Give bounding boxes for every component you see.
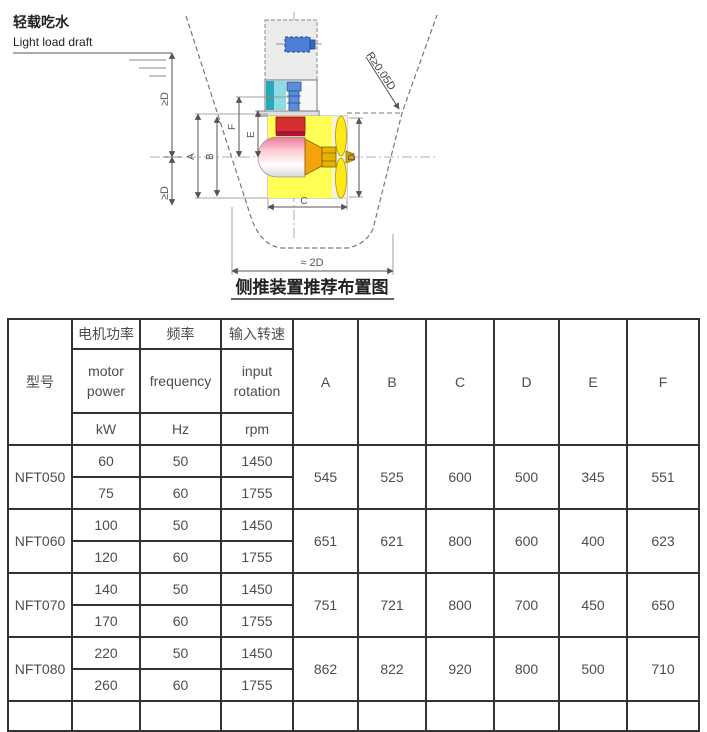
table-row: NFT080 220 50 1450 862 822 920 800 500 7…	[8, 637, 699, 669]
rpm-cell: 1755	[221, 541, 293, 573]
kw-cell: 140	[72, 573, 140, 605]
model-cell: NFT080	[8, 637, 72, 701]
dim-b-cell: 721	[358, 573, 426, 637]
model-cell: NFT070	[8, 573, 72, 637]
empty-cell	[293, 701, 358, 731]
dim-a-cell: 862	[293, 637, 358, 701]
hz-cell: 60	[140, 669, 221, 701]
header-power-en-line1: motor	[73, 361, 139, 381]
dim-d-cell: 700	[494, 573, 559, 637]
table-row: NFT050 60 50 1450 545 525 600 500 345 55…	[8, 445, 699, 477]
dim-f-cell: 551	[627, 445, 699, 509]
gear-teal-slab	[266, 81, 274, 110]
header-rotation-zh: 输入转速	[221, 319, 293, 349]
dim-e-cell: 500	[559, 637, 627, 701]
kw-cell: 100	[72, 509, 140, 541]
table-row: NFT060 100 50 1450 651 621 800 600 400 6…	[8, 509, 699, 541]
kw-cell: 75	[72, 477, 140, 509]
hz-cell: 60	[140, 477, 221, 509]
header-model: 型号	[8, 319, 72, 445]
header-dim-c: C	[426, 319, 494, 445]
table-row: NFT070 140 50 1450 751 721 800 700 450 6…	[8, 573, 699, 605]
dim-c-cell: 920	[426, 637, 494, 701]
dim-a-cell: 751	[293, 573, 358, 637]
dim-c-cell: 600	[426, 445, 494, 509]
model-cell: NFT060	[8, 509, 72, 573]
thruster-arrangement-diagram: 轻载吃水 Light load draft ≥D ≥D R≥0.05D	[0, 0, 707, 312]
header-power-unit: kW	[72, 413, 140, 445]
dim-e-cell: 450	[559, 573, 627, 637]
empty-cell	[494, 701, 559, 731]
dim-a-cell: 545	[293, 445, 358, 509]
hz-cell: 60	[140, 541, 221, 573]
dim-d-cell: 600	[494, 509, 559, 573]
empty-cell	[426, 701, 494, 731]
kw-cell: 60	[72, 445, 140, 477]
kw-cell: 220	[72, 637, 140, 669]
dim-a-cell: 651	[293, 509, 358, 573]
empty-cell	[140, 701, 221, 731]
propeller-blade-lower	[336, 158, 347, 198]
dim-b-cell: 621	[358, 509, 426, 573]
page: { "diagram": { "light_load_draft_zh": "轻…	[0, 0, 707, 714]
dim-f-cell: 623	[627, 509, 699, 573]
empty-cell	[358, 701, 426, 731]
propeller-hub	[322, 147, 336, 167]
ge-d-lower-label: ≥D	[159, 186, 171, 200]
thruster-diagram-svg: 轻载吃水 Light load draft ≥D ≥D R≥0.05D	[0, 0, 707, 312]
dim-label-d: D	[347, 154, 358, 161]
rpm-cell: 1450	[221, 509, 293, 541]
light-load-draft-en-label: Light load draft	[13, 35, 93, 49]
thruster-spec-table: 型号 电机功率 频率 输入转速 A B C D E F motor power …	[7, 318, 700, 732]
header-power-en-line2: power	[73, 381, 139, 401]
header-dim-f: F	[627, 319, 699, 445]
motor-end-cap	[310, 40, 315, 49]
shaft-coupling	[287, 82, 301, 91]
header-dim-b: B	[358, 319, 426, 445]
dim-label-f: F	[227, 124, 238, 130]
light-load-draft-zh-label: 轻载吃水	[13, 14, 70, 30]
gear-teal-slab-light	[274, 81, 286, 110]
dim-f-cell: 710	[627, 637, 699, 701]
header-dim-a: A	[293, 319, 358, 445]
empty-cell	[221, 701, 293, 731]
empty-cell	[559, 701, 627, 731]
dim-d-cell: 500	[494, 445, 559, 509]
model-cell: NFT050	[8, 445, 72, 509]
hz-cell: 50	[140, 637, 221, 669]
hz-cell: 50	[140, 573, 221, 605]
header-frequency-zh: 频率	[140, 319, 221, 349]
header-frequency-en: frequency	[140, 349, 221, 413]
approx-2d-label: ≈ 2D	[300, 257, 323, 269]
drive-shaft	[289, 91, 299, 111]
dim-c-cell: 800	[426, 509, 494, 573]
rpm-cell: 1450	[221, 637, 293, 669]
rpm-cell: 1755	[221, 477, 293, 509]
radius-label: R≥0.05D	[364, 50, 398, 93]
pod-body	[258, 137, 305, 177]
dim-b-cell: 822	[358, 637, 426, 701]
header-rotation-en-line2: rotation	[222, 381, 292, 401]
ge-d-upper-label: ≥D	[159, 92, 171, 106]
dim-b-cell: 525	[358, 445, 426, 509]
diagram-caption: 侧推装置推荐布置图	[236, 277, 389, 297]
dim-e-cell: 400	[559, 509, 627, 573]
rpm-cell: 1450	[221, 445, 293, 477]
kw-cell: 170	[72, 605, 140, 637]
header-rotation-en: input rotation	[221, 349, 293, 413]
header-dim-e: E	[559, 319, 627, 445]
header-rotation-unit: rpm	[221, 413, 293, 445]
empty-cell	[8, 701, 72, 731]
kw-cell: 120	[72, 541, 140, 573]
dim-c-cell: 800	[426, 573, 494, 637]
dim-label-b: B	[205, 153, 216, 160]
rpm-cell: 1755	[221, 605, 293, 637]
empty-cell	[627, 701, 699, 731]
table-row-partial	[8, 701, 699, 731]
hz-cell: 60	[140, 605, 221, 637]
dim-label-c: C	[300, 196, 307, 207]
header-frequency-unit: Hz	[140, 413, 221, 445]
dim-d-cell: 800	[494, 637, 559, 701]
header-row-zh: 型号 电机功率 频率 输入转速 A B C D E F	[8, 319, 699, 349]
header-power-en: motor power	[72, 349, 140, 413]
header-rotation-en-line1: input	[222, 361, 292, 381]
electric-motor	[285, 37, 310, 52]
header-power-zh: 电机功率	[72, 319, 140, 349]
mounting-flange	[257, 111, 319, 116]
dim-f-cell: 650	[627, 573, 699, 637]
header-dim-d: D	[494, 319, 559, 445]
hz-cell: 50	[140, 445, 221, 477]
dim-e-cell: 345	[559, 445, 627, 509]
dim-label-a: A	[186, 153, 197, 160]
hz-cell: 50	[140, 509, 221, 541]
propeller-blade-upper	[336, 116, 347, 156]
gearbox-red-strip	[276, 131, 305, 136]
rpm-cell: 1755	[221, 669, 293, 701]
rpm-cell: 1450	[221, 573, 293, 605]
empty-cell	[72, 701, 140, 731]
dim-label-e: E	[246, 131, 257, 138]
kw-cell: 260	[72, 669, 140, 701]
water-surface-hatch	[129, 60, 166, 76]
